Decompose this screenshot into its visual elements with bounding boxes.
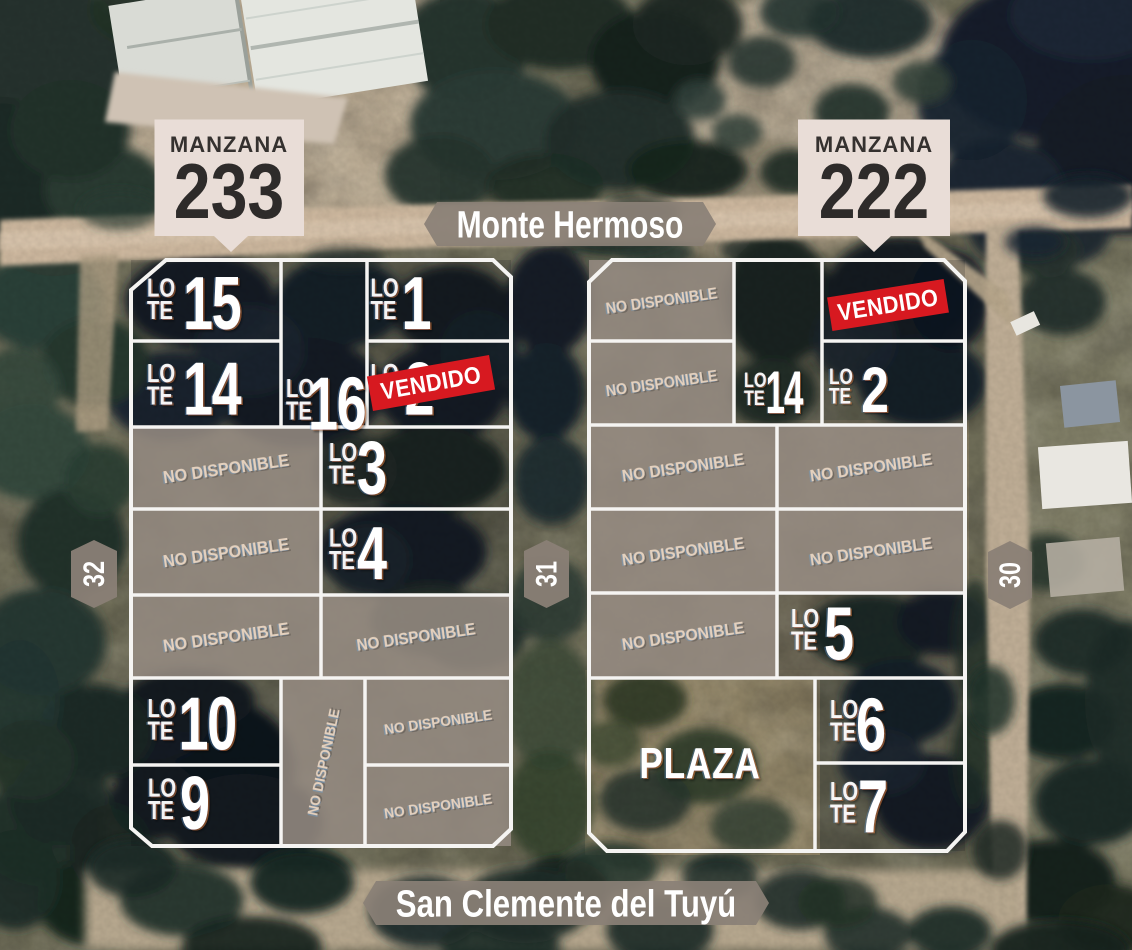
svg-text:233: 233 <box>174 148 285 235</box>
svg-text:14: 14 <box>183 347 241 431</box>
svg-text:31: 31 <box>530 561 563 587</box>
svg-text:TE: TE <box>147 381 173 410</box>
svg-text:2: 2 <box>861 355 887 426</box>
svg-text:9: 9 <box>180 761 209 845</box>
svg-text:TE: TE <box>744 386 765 409</box>
svg-text:4: 4 <box>357 511 387 595</box>
svg-text:TE: TE <box>147 296 173 325</box>
svg-text:Monte Hermoso: Monte Hermoso <box>457 204 684 246</box>
svg-text:30: 30 <box>993 562 1026 588</box>
svg-text:7: 7 <box>858 765 887 849</box>
svg-text:TE: TE <box>329 460 355 489</box>
svg-text:TE: TE <box>371 296 397 325</box>
svg-text:1: 1 <box>402 261 431 345</box>
svg-text:15: 15 <box>183 261 241 345</box>
svg-text:TE: TE <box>791 626 817 655</box>
svg-text:10: 10 <box>179 682 236 766</box>
svg-text:6: 6 <box>856 683 885 767</box>
svg-text:TE: TE <box>829 384 851 409</box>
svg-text:TE: TE <box>148 716 174 745</box>
svg-text:14: 14 <box>766 361 804 427</box>
svg-text:TE: TE <box>830 717 856 746</box>
svg-text:3: 3 <box>357 426 386 510</box>
svg-text:TE: TE <box>830 799 856 828</box>
svg-text:TE: TE <box>148 796 174 825</box>
svg-text:PLAZA: PLAZA <box>639 739 760 788</box>
svg-text:San Clemente del Tuyú: San Clemente del Tuyú <box>396 884 736 926</box>
svg-text:TE: TE <box>329 546 355 575</box>
svg-text:32: 32 <box>77 561 110 587</box>
svg-text:222: 222 <box>819 148 930 235</box>
svg-text:5: 5 <box>824 592 853 676</box>
